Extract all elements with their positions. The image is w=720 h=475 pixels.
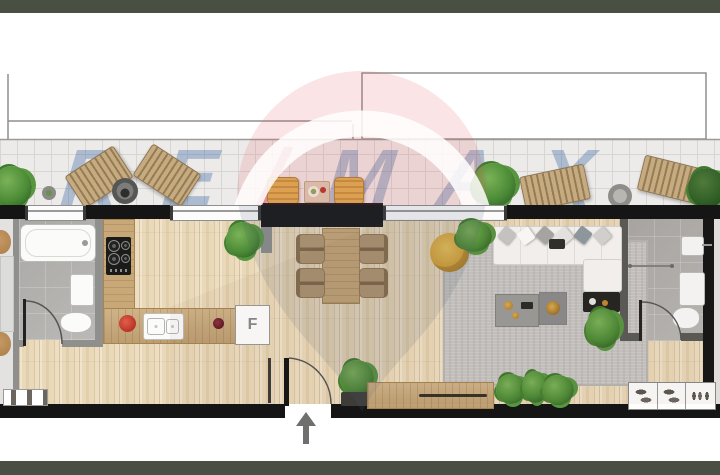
red-pot (320, 187, 326, 193)
burner (108, 240, 120, 252)
washbasin-2 (679, 272, 705, 306)
sideboard-handle (419, 394, 487, 397)
wall-segment-thick (261, 203, 383, 227)
bottom-frame-bar (0, 461, 720, 475)
partition-bathroom2-bottom-b (681, 333, 703, 341)
sofa-chaise (583, 259, 622, 292)
partition-kitchen-dining (261, 227, 272, 253)
partition-bathroom2-bottom-a (620, 333, 641, 341)
bathtub (20, 224, 96, 262)
wall-segment (507, 205, 720, 219)
sink-basin (166, 319, 179, 334)
gold-bowl (504, 301, 513, 310)
terrace-armchair-2 (334, 177, 364, 205)
kitchen-sink (143, 313, 184, 340)
wall-segment (86, 205, 170, 219)
partition-bathroom1-right (95, 219, 103, 347)
window-living (383, 205, 507, 221)
terrace-grill (112, 178, 138, 204)
dining-chair (296, 268, 325, 298)
shaft (714, 219, 720, 404)
living-plant-top (456, 220, 492, 252)
entrance-door-leaf (284, 358, 289, 406)
gold-bowl (512, 312, 519, 319)
toilet-2 (672, 307, 700, 329)
window-bathroom (25, 205, 86, 221)
decor-gold (602, 300, 608, 306)
dining-chair (359, 234, 388, 264)
roof-outline-right (362, 73, 706, 139)
terrace-plant-middle (472, 163, 516, 207)
remote (521, 302, 533, 309)
gold-decor (546, 301, 560, 315)
partition-bathroom1-bottom-b (62, 340, 103, 347)
door-leaf-bathroom2 (639, 300, 642, 341)
dining-chair (359, 268, 388, 298)
burner (121, 241, 130, 250)
bed-edge (0, 256, 14, 332)
door-leaf-bathroom1 (23, 299, 26, 346)
sink-basin (147, 318, 165, 335)
entrance-arrow-shaft (303, 425, 309, 444)
wine-bottle (213, 318, 224, 329)
bowl-tomatoes (119, 315, 136, 332)
toilet-1 (60, 312, 92, 333)
terrace-side-table (304, 181, 330, 203)
terrace-plant-right (688, 168, 720, 208)
fridge-label: F (248, 316, 258, 334)
stove (106, 237, 131, 275)
roof-outline-left (8, 74, 353, 139)
terrace-armchair-1 (267, 177, 299, 205)
wall-segment (0, 205, 25, 219)
shower-head (681, 236, 704, 256)
dining-table (322, 228, 360, 304)
decor-bowl (589, 298, 596, 305)
fridge: F (235, 305, 270, 345)
hall-wall-return (268, 358, 271, 403)
plate-with-greens (308, 186, 319, 197)
washbasin-1 (70, 274, 94, 306)
burner (108, 253, 120, 265)
floor-plan: RE/MAX (0, 0, 720, 475)
dining-chair (296, 234, 325, 264)
hall-plant-3 (542, 375, 574, 405)
top-frame-bar (0, 0, 720, 13)
sofa-tray (549, 239, 565, 249)
living-plant-bottom (586, 308, 620, 348)
terrace-small-pot (42, 186, 56, 200)
burner (121, 254, 130, 263)
coffee-table-2 (539, 292, 567, 325)
wall-bottom-left (0, 404, 285, 418)
kitchen-plant (226, 222, 260, 258)
stove-knobs (110, 269, 127, 272)
entrance-opening (285, 404, 331, 418)
hall-sideboard (367, 382, 494, 409)
entry-bench (3, 389, 48, 406)
shoe-cabinet (628, 382, 716, 410)
window-kitchen (170, 205, 261, 221)
coffee-table-1 (495, 294, 539, 327)
